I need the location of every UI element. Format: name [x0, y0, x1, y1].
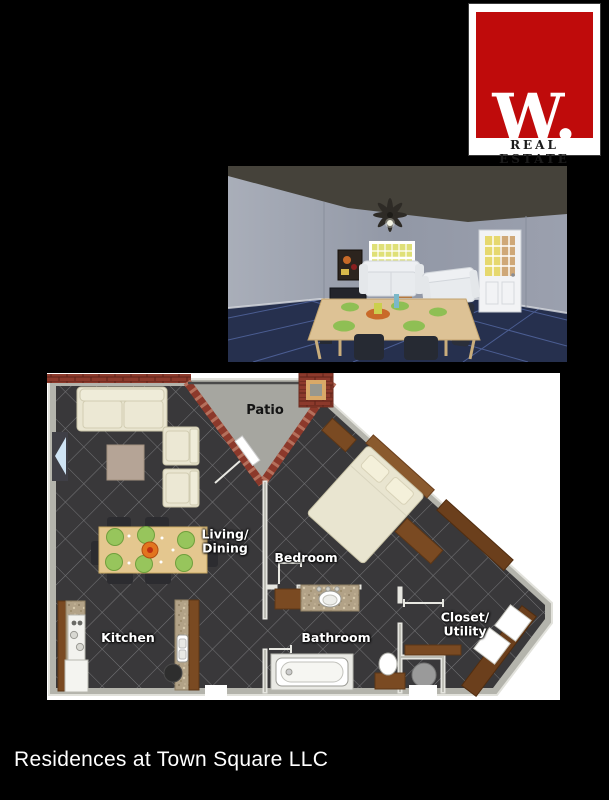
- plate: [391, 302, 409, 311]
- cup: [374, 303, 382, 314]
- plate: [341, 303, 359, 312]
- logo-subtitle: REAL ESTATE: [469, 138, 600, 166]
- entry-door: [479, 230, 521, 312]
- stool: [164, 664, 182, 682]
- bathroom-vanity: [275, 585, 359, 611]
- dining-chair: [404, 336, 438, 360]
- water-heater: [412, 663, 436, 687]
- door-opening: [409, 685, 437, 697]
- floor-plan: [47, 373, 560, 700]
- plate: [333, 321, 355, 332]
- bathtub: [271, 654, 353, 690]
- armchair: [163, 469, 199, 507]
- armchair: [163, 427, 199, 465]
- patio-column: [299, 373, 333, 407]
- refrigerator: [65, 660, 88, 692]
- ceiling-fan: [373, 198, 407, 232]
- label-bedroom: Bedroom: [274, 551, 337, 565]
- bottle: [394, 294, 399, 308]
- plate: [403, 321, 425, 332]
- door-opening: [205, 685, 227, 697]
- label-kitchen: Kitchen: [101, 631, 155, 645]
- plate: [429, 308, 447, 317]
- property-title: Residences at Town Square LLC: [14, 748, 328, 772]
- brick-wall: [47, 374, 191, 383]
- stove: [68, 615, 85, 663]
- label-closet-utility: Closet/ Utility: [441, 610, 490, 638]
- coffee-table: [107, 445, 144, 480]
- label-bathroom: Bathroom: [301, 631, 370, 645]
- wall-art: [338, 250, 362, 280]
- loveseat: [359, 261, 424, 296]
- label-living-dining: Living/ Dining: [201, 527, 248, 555]
- dining-chair: [354, 334, 384, 360]
- logo-red-square: W.: [476, 12, 593, 138]
- utility-shelf: [405, 645, 461, 655]
- interior-3d-rendering: [228, 166, 567, 362]
- flyer-canvas: W. REAL ESTATE: [0, 0, 609, 800]
- television: [52, 432, 68, 481]
- kitchen-counter: [58, 601, 88, 692]
- w-real-estate-logo: W. REAL ESTATE: [468, 3, 601, 156]
- label-patio: Patio: [246, 404, 284, 418]
- sofa: [77, 387, 167, 431]
